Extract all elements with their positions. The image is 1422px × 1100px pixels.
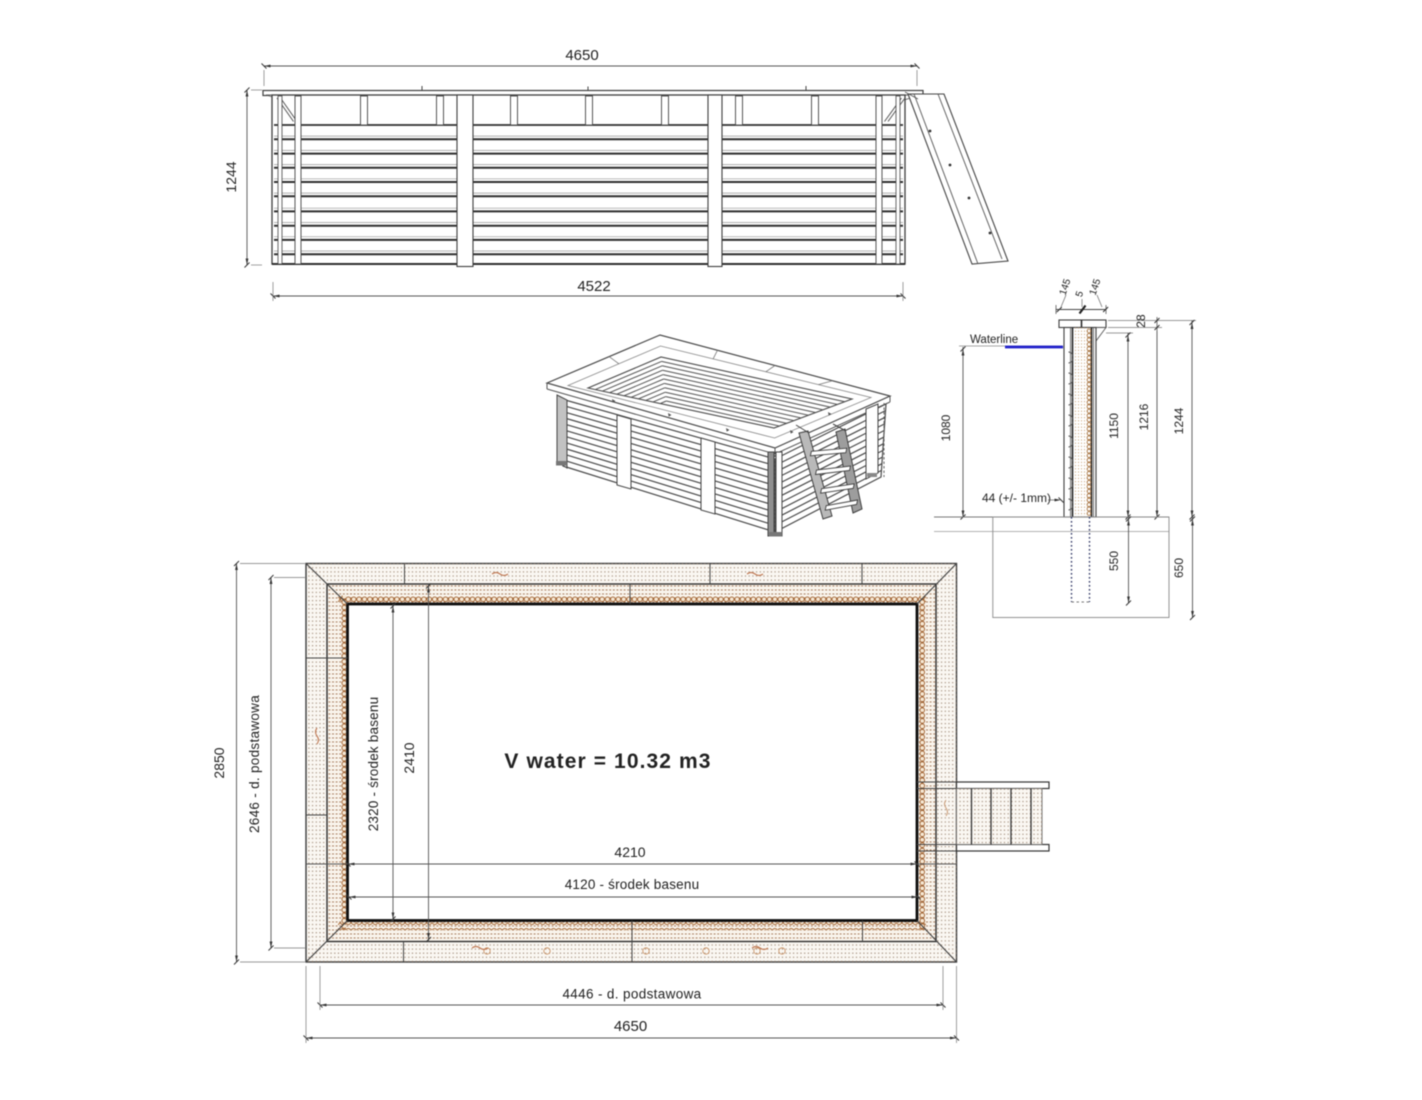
svg-text:2320 - środek basenu: 2320 - środek basenu — [366, 697, 381, 832]
svg-text:1244: 1244 — [223, 161, 239, 192]
svg-text:4210: 4210 — [614, 844, 645, 860]
svg-text:2646 - d. podstawowa: 2646 - d. podstawowa — [247, 695, 262, 833]
svg-text:550: 550 — [1107, 551, 1121, 571]
svg-text:650: 650 — [1172, 558, 1186, 578]
svg-text:4650: 4650 — [565, 47, 598, 64]
svg-text:4446 - d. podstawowa: 4446 - d. podstawowa — [562, 987, 701, 1002]
svg-text:Waterline: Waterline — [970, 334, 1018, 346]
svg-text:V water = 10.32 m3: V water = 10.32 m3 — [504, 750, 711, 773]
svg-text:1080: 1080 — [939, 414, 953, 441]
svg-text:28: 28 — [1134, 314, 1148, 328]
svg-text:4522: 4522 — [577, 278, 610, 295]
svg-text:2850: 2850 — [211, 747, 227, 778]
svg-text:1150: 1150 — [1107, 413, 1121, 439]
svg-text:1216: 1216 — [1137, 403, 1151, 430]
svg-text:1244: 1244 — [1172, 407, 1186, 434]
svg-text:4650: 4650 — [614, 1018, 647, 1035]
svg-text:2410: 2410 — [401, 742, 417, 773]
svg-text:44 (+/- 1mm): 44 (+/- 1mm) — [982, 491, 1051, 505]
svg-text:4120 - środek basenu: 4120 - środek basenu — [565, 877, 700, 892]
